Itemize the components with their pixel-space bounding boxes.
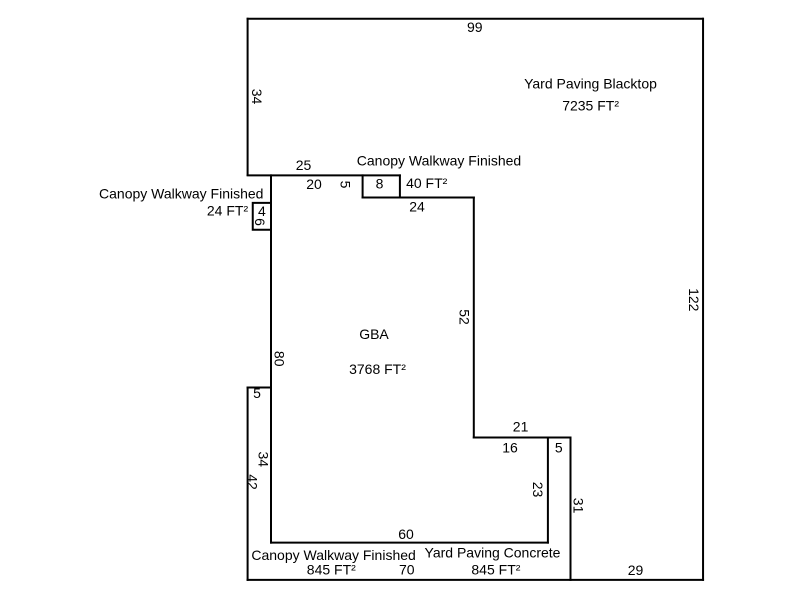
svg-text:24 FT²: 24 FT² <box>207 203 249 219</box>
svg-text:80: 80 <box>272 351 288 367</box>
svg-text:8: 8 <box>376 176 384 192</box>
svg-text:52: 52 <box>456 309 472 325</box>
svg-text:24: 24 <box>409 199 425 215</box>
svg-text:40 FT²: 40 FT² <box>406 175 448 191</box>
svg-text:21: 21 <box>513 419 529 435</box>
svg-text:99: 99 <box>467 19 483 35</box>
svg-text:122: 122 <box>686 288 702 312</box>
svg-text:25: 25 <box>296 157 312 173</box>
svg-text:5: 5 <box>555 440 563 456</box>
svg-text:31: 31 <box>570 498 586 514</box>
svg-text:5: 5 <box>253 385 261 401</box>
svg-text:42: 42 <box>245 474 261 490</box>
svg-text:845 FT²: 845 FT² <box>307 562 356 578</box>
svg-text:Canopy Walkway Finished: Canopy Walkway Finished <box>357 153 521 169</box>
svg-text:29: 29 <box>628 562 644 578</box>
svg-text:60: 60 <box>398 526 414 542</box>
svg-text:Canopy Walkway Finished: Canopy Walkway Finished <box>99 185 263 201</box>
svg-text:20: 20 <box>306 176 322 192</box>
svg-text:Yard Paving Blacktop: Yard Paving Blacktop <box>524 76 657 92</box>
svg-text:23: 23 <box>530 482 546 498</box>
svg-text:GBA: GBA <box>359 326 389 342</box>
svg-text:16: 16 <box>502 439 518 455</box>
svg-text:6: 6 <box>252 218 268 226</box>
svg-text:70: 70 <box>399 562 415 578</box>
svg-text:7235 FT²: 7235 FT² <box>562 98 619 114</box>
svg-text:4: 4 <box>258 203 266 219</box>
svg-text:34: 34 <box>249 89 265 105</box>
svg-text:5: 5 <box>337 181 353 189</box>
svg-text:Yard Paving Concrete: Yard Paving Concrete <box>425 545 561 561</box>
svg-text:34: 34 <box>256 452 272 468</box>
svg-text:3768 FT²: 3768 FT² <box>349 361 406 377</box>
svg-text:845 FT²: 845 FT² <box>471 562 520 578</box>
